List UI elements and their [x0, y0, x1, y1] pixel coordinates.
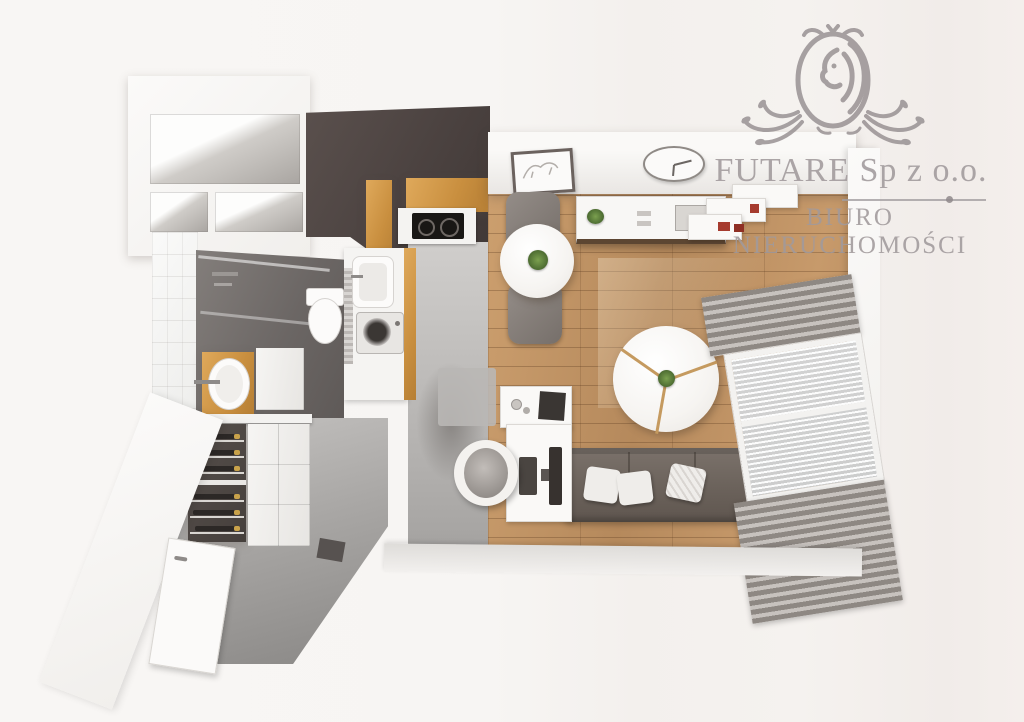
clock-hand	[672, 165, 675, 176]
side-table	[500, 386, 572, 428]
kitchen-counter	[398, 208, 476, 244]
throw-pillow	[616, 470, 654, 506]
patterned-pillow	[665, 463, 707, 504]
clock-hand	[674, 160, 692, 166]
shower-rail-icon	[214, 283, 232, 286]
coffee-table	[613, 326, 719, 432]
wardrobe-closet-room	[128, 76, 310, 256]
table-plant	[528, 250, 548, 270]
potted-plant	[587, 209, 604, 224]
wardrobe-niche-small-left	[150, 192, 208, 232]
wine-bottle	[193, 510, 235, 515]
sideboard-slot	[637, 221, 651, 226]
monitor-stand	[541, 469, 549, 481]
vanity-cabinet	[202, 352, 254, 414]
rack-shelf	[190, 516, 244, 518]
picture-frame	[511, 148, 576, 196]
floor-plan-render: FUTARE Sp z o.o. BIURO NIERUCHOMOŚCI	[0, 0, 1024, 722]
kitchen-upper-wood-cabinet	[406, 178, 488, 212]
cooktop	[412, 213, 464, 239]
washer-drum	[363, 318, 391, 346]
bathroom-cabinet	[256, 348, 304, 410]
cabinet-seam	[278, 424, 279, 546]
hallway-cabinet	[248, 424, 310, 546]
wine-bottle	[194, 494, 235, 499]
throw-pillow	[583, 466, 621, 504]
monitor	[549, 447, 562, 505]
wine-bottle	[195, 526, 235, 531]
picture-sketch	[514, 152, 566, 187]
window-mullion	[741, 402, 866, 428]
kitchen-sink	[352, 256, 394, 308]
cabinet-seam	[248, 504, 310, 505]
faucet-icon	[351, 275, 363, 278]
burner-icon	[440, 218, 459, 237]
armchair-seat	[464, 448, 508, 498]
faucet-icon	[194, 380, 220, 384]
doormat	[316, 538, 345, 562]
table-plant	[658, 370, 675, 387]
watermark-divider-dot	[946, 196, 953, 203]
table-seam	[655, 380, 667, 434]
sink-basin	[215, 365, 243, 403]
washing-machine	[356, 312, 404, 354]
shower-arm-icon	[212, 272, 238, 276]
kitchen-wood-side-panel	[404, 248, 416, 400]
armchair	[454, 440, 518, 506]
vanity-sink	[208, 358, 250, 410]
rack-shelf	[190, 500, 244, 502]
cup	[511, 399, 522, 410]
lion-crest-icon	[738, 24, 928, 156]
rack-shelf	[190, 532, 244, 534]
cup	[523, 407, 530, 414]
sink-basin	[359, 263, 387, 301]
sideboard-slot	[637, 211, 651, 216]
keyboard	[519, 457, 537, 495]
watermark-divider	[842, 199, 986, 201]
rug	[438, 368, 496, 426]
washer-knob	[395, 321, 400, 326]
wardrobe-niche-small-right	[215, 192, 303, 232]
watermark-subtitle: BIURO NIERUCHOMOŚCI	[700, 204, 1000, 260]
dining-table	[500, 224, 574, 298]
laptop	[538, 391, 566, 421]
bottom-wall	[384, 543, 862, 576]
wardrobe-niche-large	[150, 114, 300, 184]
wall-clock	[643, 146, 705, 182]
watermark-company: FUTARE Sp z o.o.	[706, 152, 996, 190]
door-handle-icon	[174, 556, 187, 562]
cabinet-seam	[248, 464, 310, 465]
burner-icon	[418, 219, 435, 236]
window	[724, 333, 884, 503]
kitchen-base-cabinet	[344, 248, 408, 400]
